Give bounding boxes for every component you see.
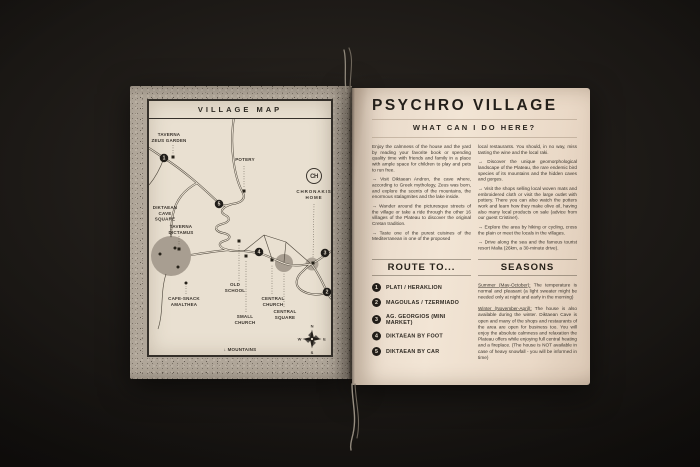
season-paragraph-summer: Summer (May-October): The temperature is… [478,282,577,300]
bullet-paragraph: → Visit the shops selling local woven ma… [478,185,577,220]
map-marker-2: 2 [323,288,331,297]
winter-lead: Winter (November-April): [478,306,532,312]
route-item: 1 PLATI / HERAKLION [372,283,471,292]
route-label: DIKTAEAN BY FOOT [386,333,443,339]
route-to-section: ROUTE TO... 1 PLATI / HERAKLION 2 MAGOUL… [372,259,471,366]
bullet-paragraph: → Taste one of the purest cuisines of th… [372,230,471,242]
bullet-paragraph: → Discover the unique geomorphological l… [478,159,577,182]
route-label: MAGOULAS / TZERMIADO [386,300,459,306]
section-subtitle: WHAT CAN I DO HERE? [372,124,577,133]
map-marker-5: 5 [215,200,224,209]
right-page: PSYCHRO VILLAGE WHAT CAN I DO HERE? Enjo… [352,88,590,385]
route-number-badge: 5 [372,347,381,356]
compass-east-label: E [323,337,326,342]
compass-west-label: W [298,337,302,342]
book-spine [348,87,355,385]
seasons-section: SEASONS Summer (May-October): The temper… [478,259,577,366]
left-page: VILLAGE MAP [130,86,352,379]
bullet-paragraph: → Visit Diktaean Andron, the cave where,… [372,176,471,199]
route-list: 1 PLATI / HERAKLION 2 MAGOULAS / TZERMIA… [372,283,471,356]
what-to-do-text: Enjoy the calmness of the house and the … [372,144,577,255]
map-label-central-square: CENTRAL SQUARE [274,309,297,321]
map-marker-1: 1 [160,154,169,163]
map-label-taverna-zeus-garden: TAVERNA ZEUS GARDEN [152,132,187,144]
bullet-paragraph: local restaurants. You should, in no way… [478,144,577,156]
map-label-diktaean-cave-square: DIKTAEAN CAVE SQUARE [153,205,178,223]
bullet-paragraph: Enjoy the calmness of the house and the … [372,144,471,173]
cave-square-area [151,236,191,276]
map-label-potery: POTERY [235,157,255,163]
summer-lead: Summer (May-October): [478,282,531,288]
text-column-left: Enjoy the calmness of the house and the … [372,144,471,255]
compass-south-label: S [311,350,314,355]
map-marker-3: 3 [321,249,330,258]
route-item: 2 MAGOULAS / TZERMIADO [372,298,471,307]
village-map: N E S W TAVERNA ZEUS GARDEN POTERY CH CH… [149,119,331,355]
route-label: DIKTAEAN BY CAR [386,348,439,354]
bullet-paragraph: → Explore the area by hiking or cycling,… [478,224,577,236]
map-title: VILLAGE MAP [149,101,331,119]
route-number-badge: 3 [372,315,381,324]
route-label: AG. GEORGIOS (MINI MARKET) [386,313,471,325]
bullet-paragraph: → Wander around the picturesque streets … [372,203,471,226]
map-marker-4: 4 [255,248,264,257]
map-label-cafe-snack-amalthea: CAFE-SNACK AMALTHEA [168,296,200,308]
route-number-badge: 1 [372,283,381,292]
route-number-badge: 2 [372,298,381,307]
season-paragraph-winter: Winter (November-April): The house is al… [478,306,577,361]
bullet-paragraph: → Drive along the sea and the famous tou… [478,239,577,251]
chronakis-home-logo: CH [306,168,322,184]
route-number-badge: 4 [372,332,381,341]
text-column-right: local restaurants. You should, in no way… [478,144,577,255]
map-label-small-church: SMALL CHURCH [235,314,256,326]
compass-north-label: N [311,324,314,329]
map-label-chronakis-home: CHRONAKIS HOME [296,189,331,201]
map-label-mountains: ↓ MOUNTAINS [224,347,257,353]
seasons-text: Summer (May-October): The temperature is… [478,282,577,361]
route-to-title: ROUTE TO... [372,259,471,275]
route-item: 5 DIKTAEAN BY CAR [372,347,471,356]
map-label-central-church: CENTRAL CHURCH [262,296,285,308]
route-item: 4 DIKTAEAN BY FOOT [372,332,471,341]
winter-body: The house is also available during the w… [478,306,577,360]
divider [372,137,577,138]
page-title: PSYCHRO VILLAGE [372,96,577,114]
map-label-taverna-dictamus: TAVERNA DICTAMUS [168,224,193,236]
seasons-title: SEASONS [478,259,577,275]
map-panel: VILLAGE MAP [147,99,333,357]
route-label: PLATI / HERAKLION [386,284,442,290]
divider [372,119,577,120]
map-label-old-school: OLD SCHOOL [225,282,245,294]
compass-rose: N E S W [298,324,327,356]
route-item: 3 AG. GEORGIOS (MINI MARKET) [372,313,471,325]
